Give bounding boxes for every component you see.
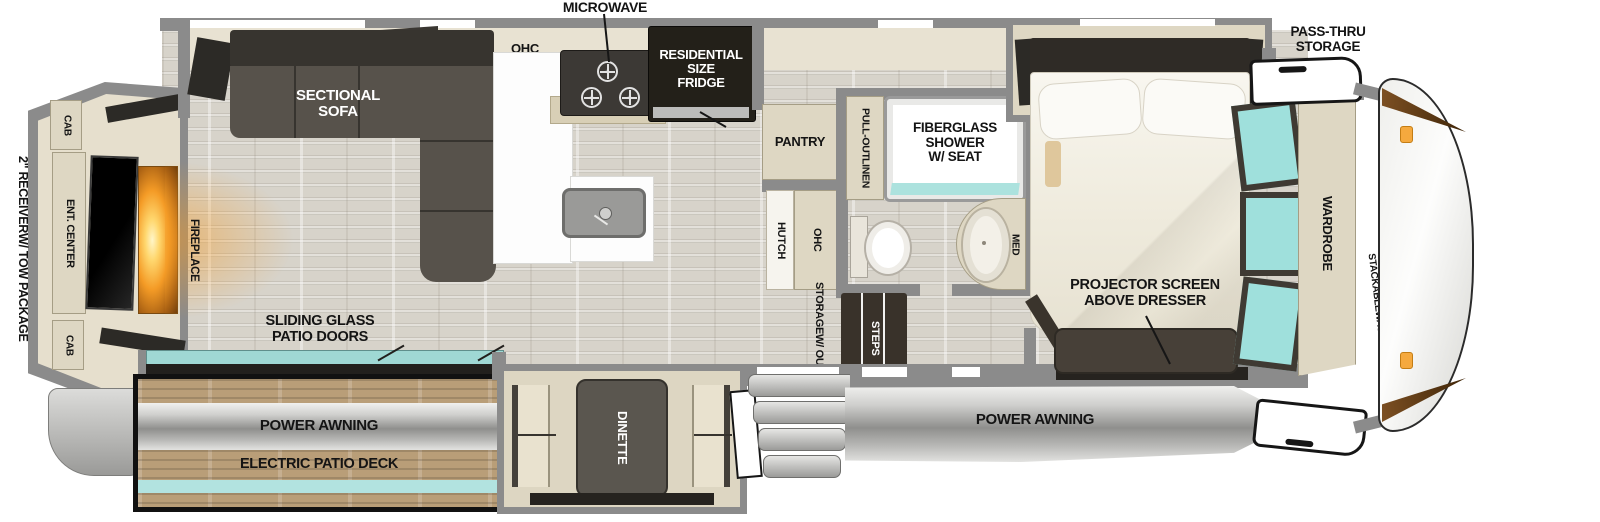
deck-plank-top bbox=[138, 379, 500, 403]
fridge-base bbox=[653, 107, 749, 118]
hutch-ohc-label: OHC bbox=[810, 228, 822, 252]
pantry: PANTRY bbox=[762, 104, 838, 180]
pillow-icon bbox=[1037, 78, 1143, 141]
island-sink bbox=[562, 188, 646, 238]
rear-skirt bbox=[48, 388, 142, 476]
patio-door-glass bbox=[146, 350, 504, 365]
sectional-sofa-chaise bbox=[420, 66, 496, 282]
shower-label-line2: SHOWER bbox=[926, 136, 985, 151]
projector-label-line2: ABOVE DRESSER bbox=[1084, 294, 1206, 310]
pass-thru-label: PASS-THRU STORAGE bbox=[1266, 20, 1390, 60]
fridge-label-line1: RESIDENTIAL bbox=[659, 48, 742, 62]
patio-doors-line1: SLIDING GLASS bbox=[266, 314, 375, 330]
vanity-drain-icon bbox=[982, 241, 986, 245]
storage-outlet-line1: STORAGE bbox=[812, 282, 824, 334]
sofa-label-line2: SOFA bbox=[318, 104, 358, 120]
dresser bbox=[1054, 328, 1238, 374]
bedroom-window-icon bbox=[1240, 192, 1304, 276]
dinette-bench-left bbox=[512, 385, 550, 487]
hutch-ohc: OHC bbox=[794, 190, 838, 290]
receiver-label-line2: W/ TOW PACKAGE bbox=[15, 233, 29, 342]
bedroom-window-icon bbox=[1231, 98, 1305, 191]
front-cap bbox=[1378, 78, 1474, 432]
microwave-label: MICROWAVE bbox=[545, 0, 665, 15]
entertainment-center: ENT. CENTER bbox=[52, 152, 86, 314]
bedroom-window-icon bbox=[1233, 276, 1307, 371]
shower-threshold bbox=[890, 183, 1020, 195]
receiver-label-line1: 2" RECEIVER bbox=[15, 156, 29, 233]
entry-step-tread bbox=[753, 401, 851, 424]
med-cabinet: MED bbox=[1003, 205, 1025, 285]
deck-plank-edge bbox=[138, 493, 500, 507]
bench-cushion-divider bbox=[694, 434, 732, 436]
patio-awning-label: POWER AWNING bbox=[260, 418, 378, 434]
shower-label: FIBERGLASS SHOWER W/ SEAT bbox=[887, 107, 1023, 179]
refrigerator: RESIDENTIAL SIZE FRIDGE bbox=[648, 26, 756, 122]
pass-thru-line2: STORAGE bbox=[1296, 40, 1360, 55]
deck-plank-bottom: ELECTRIC PATIO DECK bbox=[138, 450, 500, 480]
shower: FIBERGLASS SHOWER W/ SEAT bbox=[884, 96, 1026, 202]
projector-label: PROJECTOR SCREEN ABOVE DRESSER bbox=[1038, 272, 1252, 316]
entry-step-tread bbox=[758, 428, 846, 451]
patio-deck: POWER AWNING ELECTRIC PATIO DECK bbox=[133, 374, 505, 512]
pass-thru-compartment-top bbox=[1249, 56, 1363, 106]
toilet-bowl-icon bbox=[864, 220, 912, 276]
dinette-label: DINETTE bbox=[615, 411, 629, 465]
entry-step-tread bbox=[763, 455, 841, 478]
stove-burner-icon bbox=[597, 61, 618, 82]
marker-light-icon bbox=[1400, 126, 1413, 143]
patio-doors-line2: PATIO DOORS bbox=[272, 330, 368, 346]
fireplace-label: FIREPLACE bbox=[183, 195, 205, 305]
tv-screen bbox=[85, 155, 138, 311]
linen-label-line2: LINEN bbox=[859, 158, 870, 188]
marker-light-icon bbox=[1400, 352, 1413, 369]
cab-bottom-label: CAB bbox=[63, 335, 74, 356]
bed-headboard bbox=[1030, 38, 1250, 74]
fridge-label-line2: SIZE bbox=[687, 62, 715, 76]
shower-label-line3: W/ SEAT bbox=[928, 150, 981, 165]
entry-steps bbox=[748, 374, 854, 486]
deck-label: ELECTRIC PATIO DECK bbox=[240, 457, 398, 473]
shower-label-line1: FIBERGLASS bbox=[913, 121, 997, 136]
compartment-latch-icon bbox=[1278, 66, 1306, 73]
linen-label: PULL-OUT LINEN bbox=[847, 97, 883, 199]
dinette-window-icon bbox=[530, 493, 714, 505]
stove-burner-icon bbox=[619, 87, 640, 108]
wardrobe-label: WARDROBE bbox=[1320, 196, 1334, 271]
dinette-bench-right bbox=[692, 385, 730, 487]
sofa-label-line1: SECTIONAL bbox=[296, 88, 380, 104]
fridge-label: RESIDENTIAL SIZE FRIDGE bbox=[649, 33, 753, 105]
entry-step-tread bbox=[748, 374, 856, 397]
dinette-table: DINETTE bbox=[576, 379, 668, 497]
bottom-wall-gap bbox=[862, 367, 907, 377]
sofa-cushion-divider bbox=[420, 210, 496, 212]
hutch: HUTCH bbox=[766, 190, 794, 290]
med-label: MED bbox=[1009, 234, 1020, 255]
rear-cabinet-bottom: CAB bbox=[52, 320, 84, 370]
deck-edge-teal bbox=[138, 480, 500, 493]
patio-power-awning: POWER AWNING bbox=[138, 403, 500, 450]
wardrobe: WARDROBE bbox=[1298, 90, 1356, 376]
pantry-label: PANTRY bbox=[775, 135, 825, 149]
hutch-label: HUTCH bbox=[774, 222, 786, 259]
power-awning-front: POWER AWNING bbox=[845, 386, 1287, 462]
rv-floorplan: CAB ENT. CENTER CAB FIREPLACE 2" RECEIVE… bbox=[0, 0, 1600, 522]
projector-label-line1: PROJECTOR SCREEN bbox=[1070, 278, 1220, 294]
stove-burner-icon bbox=[581, 87, 602, 108]
rear-cabinet-top: CAB bbox=[50, 100, 82, 150]
sofa-slide-left-wall bbox=[178, 18, 190, 118]
receiver-label: 2" RECEIVER W/ TOW PACKAGE bbox=[0, 146, 44, 351]
cab-top-label: CAB bbox=[61, 115, 72, 136]
linen-label-line1: PULL-OUT bbox=[859, 108, 870, 159]
stove-cooktop bbox=[560, 50, 656, 116]
pass-thru-line1: PASS-THRU bbox=[1290, 25, 1365, 40]
pull-out-linen: PULL-OUT LINEN bbox=[846, 96, 884, 200]
cap-graphic-bottom-icon bbox=[1382, 378, 1466, 422]
bench-cushion-divider bbox=[518, 434, 556, 436]
fridge-label-line3: FRIDGE bbox=[677, 76, 724, 90]
bottom-wall-gap bbox=[952, 367, 980, 377]
steps-label: STEPS bbox=[867, 319, 881, 358]
ent-center-label: ENT. CENTER bbox=[63, 199, 75, 268]
bedroom-slide-window-gap bbox=[1080, 19, 1215, 26]
cap-graphic-top-icon bbox=[1382, 88, 1466, 132]
pass-thru-compartment-bottom bbox=[1252, 398, 1368, 457]
dinette-slide: DINETTE bbox=[497, 364, 747, 514]
kitchen-partition-wall bbox=[752, 26, 764, 110]
front-awning-label: POWER AWNING bbox=[935, 412, 1135, 428]
compartment-latch-icon bbox=[1285, 439, 1313, 448]
patio-doors-label: SLIDING GLASS PATIO DOORS bbox=[225, 312, 415, 348]
sofa-backrest bbox=[230, 30, 494, 68]
sofa-label: SECTIONAL SOFA bbox=[258, 80, 418, 128]
sofa-cushion-divider bbox=[420, 140, 496, 142]
